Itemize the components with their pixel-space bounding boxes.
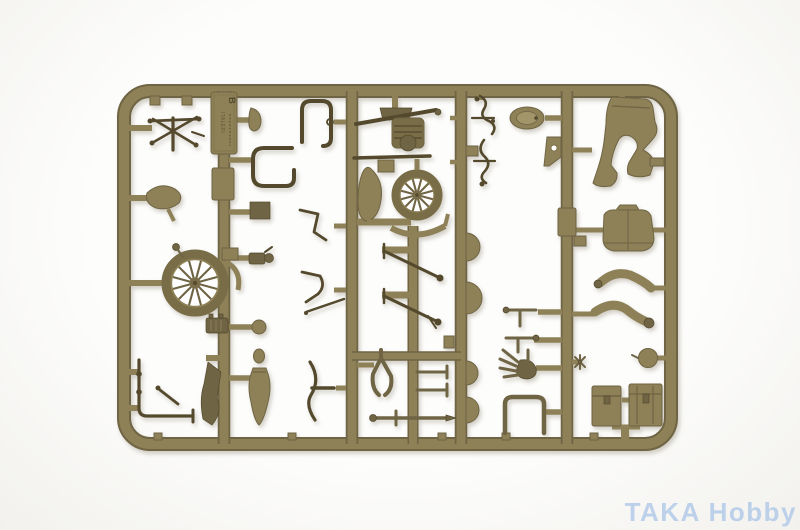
part-headlight-bracket: [544, 137, 561, 166]
part-curved-exhaust: [309, 362, 334, 420]
part-hand-lever-2: [302, 272, 323, 302]
gate-tab: [154, 433, 162, 440]
part-tab-bracket: [574, 236, 586, 246]
part-runner-block: [558, 208, 576, 236]
part-t-lever-2: [506, 335, 539, 352]
part-rider-legs: [593, 97, 657, 187]
part-rider-torso: [603, 205, 654, 251]
gate-tab: [590, 433, 598, 440]
part-rider-arm-right: [594, 274, 651, 288]
gate-tab: [150, 96, 160, 105]
embossed-brand: ITALERI: [219, 112, 225, 133]
watermark-text: TAKA Hobby: [625, 497, 797, 528]
part-small-bar: [650, 158, 664, 166]
part-pannier-box-1: [592, 386, 621, 426]
part-rider-head: [632, 349, 658, 368]
part-engine-assembly: [354, 108, 441, 172]
runner-letter: B: [226, 97, 237, 104]
gate-tab: [182, 96, 192, 105]
part-luggage-rack: [505, 397, 544, 433]
plate-block: [212, 168, 234, 200]
part-kick-lever: [156, 386, 179, 405]
part-grab-loop: [253, 148, 294, 186]
part-lever-cluster-1: [472, 96, 495, 134]
part-front-spoked-wheel: [166, 254, 224, 312]
part-saddle-seat: [146, 186, 180, 221]
sprue: B ITALERI: [124, 91, 671, 444]
part-rider-arm-left: [595, 305, 654, 328]
part-mudguard-discs: [466, 233, 482, 423]
label-plate: B ITALERI: [211, 92, 237, 200]
part-t-lever-1: [503, 307, 536, 326]
part-fuel-tank-half: [358, 167, 382, 224]
part-square-plate: [250, 202, 270, 219]
part-pannier-box-2: [629, 384, 662, 426]
part-handlebars: [148, 117, 205, 151]
part-hand-lever-1: [300, 210, 326, 240]
part-diagonal-rod: [304, 299, 344, 315]
part-gloved-hand: [500, 350, 536, 379]
gate-tab: [288, 433, 296, 440]
part-ball-knob: [252, 320, 266, 334]
part-front-mudflap: [249, 108, 261, 131]
part-headlight: [510, 107, 544, 129]
part-tab-bracket: [466, 146, 478, 156]
part-rear-spoked-wheel: [396, 159, 439, 217]
part-tab-bracket: [444, 336, 454, 348]
sprue-photo: B ITALERI: [0, 0, 800, 530]
part-fork-blade: [201, 362, 221, 425]
gate-tab: [438, 433, 446, 440]
sprue-drawing: B ITALERI: [0, 0, 800, 530]
part-amphora-tank: [249, 349, 270, 425]
part-foot-peg-rods: [417, 366, 447, 396]
part-carb-cluster: [249, 247, 274, 264]
part-exhaust-pipe: [136, 360, 193, 422]
